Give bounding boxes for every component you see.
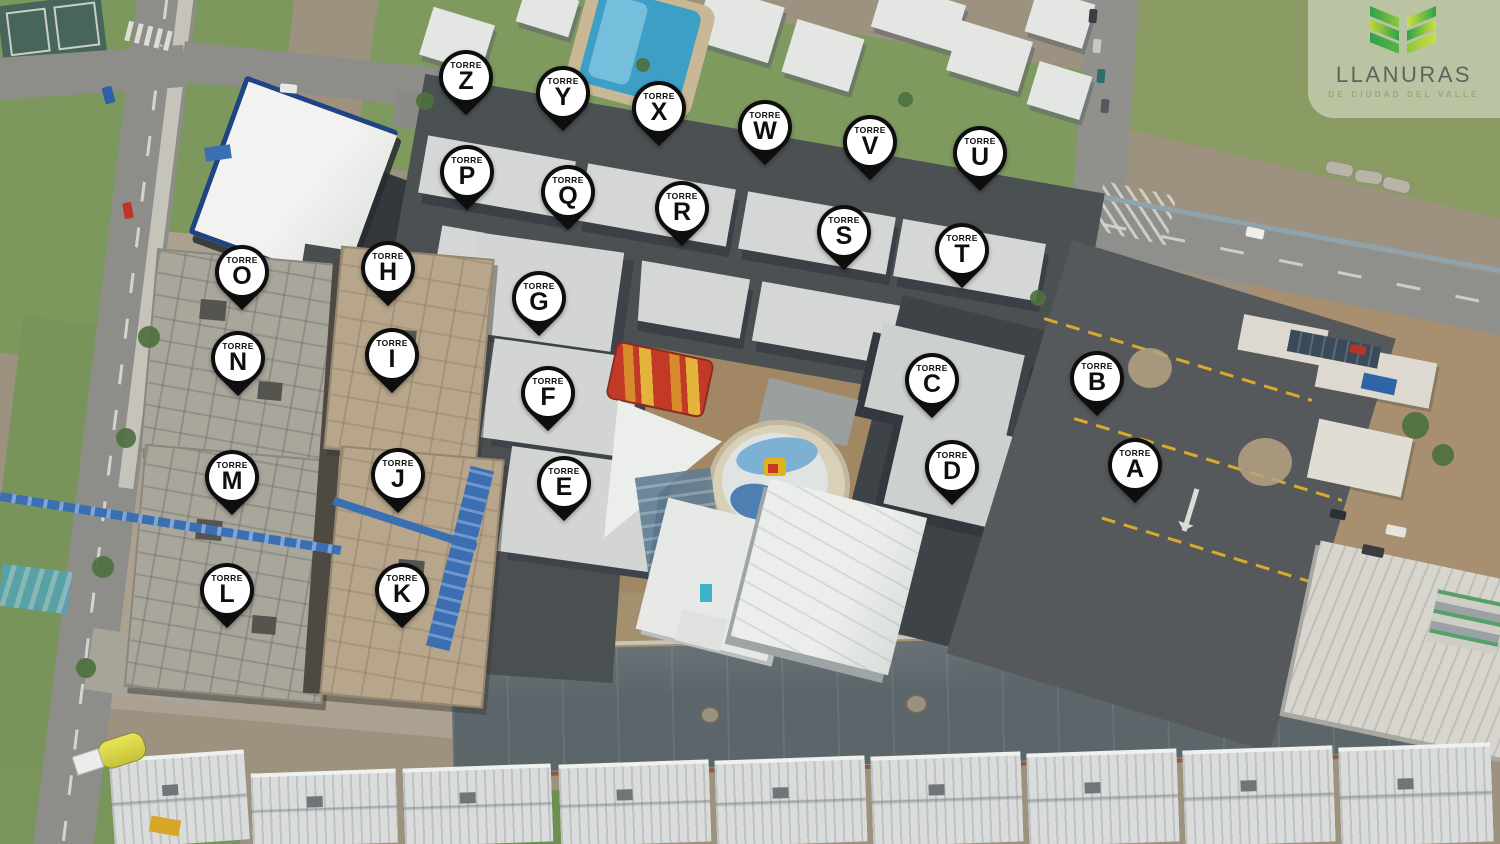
map-pin-torre-g[interactable]: TORRE G <box>511 270 567 348</box>
map-pin-face: TORRE U <box>957 130 1003 176</box>
pin-tower-letter: H <box>379 261 397 285</box>
aerial-site-map: TORRE A TORRE B TORRE C TORRE D TORRE E … <box>0 0 1500 844</box>
map-pin-torre-n[interactable]: TORRE N <box>210 330 266 408</box>
map-pin-torre-s[interactable]: TORRE S <box>816 204 872 282</box>
map-pin-torre-v[interactable]: TORRE V <box>842 114 898 192</box>
brand-watermark: LLANURAS DE CIUDAD DEL VALLE <box>1308 0 1500 118</box>
pin-tower-letter: T <box>954 243 969 267</box>
pin-tower-letter: B <box>1088 371 1106 395</box>
map-pin-face: TORRE D <box>929 444 975 490</box>
pin-tower-letter: G <box>529 291 548 315</box>
map-pin-torre-k[interactable]: TORRE K <box>374 562 430 640</box>
map-pin-torre-m[interactable]: TORRE M <box>204 449 260 527</box>
map-pin-torre-y[interactable]: TORRE Y <box>535 65 591 143</box>
pin-tower-letter: P <box>459 165 476 189</box>
map-pin-torre-i[interactable]: TORRE I <box>364 327 420 405</box>
pin-tower-letter: W <box>753 120 777 144</box>
map-pin-torre-q[interactable]: TORRE Q <box>540 164 596 242</box>
llanuras-leaves-icon <box>1370 12 1438 58</box>
map-pin-face: TORRE O <box>219 249 265 295</box>
pin-tower-letter: L <box>219 583 234 607</box>
map-pin-torre-a[interactable]: TORRE A <box>1107 437 1163 515</box>
map-pin-torre-c[interactable]: TORRE C <box>904 352 960 430</box>
map-pin-face: TORRE I <box>369 332 415 378</box>
map-pin-torre-w[interactable]: TORRE W <box>737 99 793 177</box>
map-pin-face: TORRE S <box>821 209 867 255</box>
pin-tower-letter: Y <box>555 86 572 110</box>
map-pin-torre-h[interactable]: TORRE H <box>360 240 416 318</box>
pin-layer: TORRE A TORRE B TORRE C TORRE D TORRE E … <box>0 0 1500 844</box>
map-pin-torre-d[interactable]: TORRE D <box>924 439 980 517</box>
map-pin-face: TORRE H <box>365 245 411 291</box>
map-pin-torre-f[interactable]: TORRE F <box>520 365 576 443</box>
map-pin-torre-p[interactable]: TORRE P <box>439 144 495 222</box>
map-pin-face: TORRE C <box>909 357 955 403</box>
map-pin-face: TORRE G <box>516 275 562 321</box>
map-pin-face: TORRE N <box>215 335 261 381</box>
map-pin-face: TORRE Y <box>540 70 586 116</box>
map-pin-torre-t[interactable]: TORRE T <box>934 222 990 300</box>
pin-tower-letter: F <box>540 386 555 410</box>
map-pin-torre-u[interactable]: TORRE U <box>952 125 1008 203</box>
map-pin-torre-z[interactable]: TORRE Z <box>438 49 494 127</box>
pin-tower-letter: I <box>389 348 396 372</box>
map-pin-face: TORRE R <box>659 185 705 231</box>
pin-tower-letter: D <box>943 460 961 484</box>
map-pin-torre-b[interactable]: TORRE B <box>1069 350 1125 428</box>
brand-tagline: DE CIUDAD DEL VALLE <box>1308 90 1500 99</box>
map-pin-torre-e[interactable]: TORRE E <box>536 455 592 533</box>
map-pin-face: TORRE M <box>209 454 255 500</box>
map-pin-face: TORRE Z <box>443 54 489 100</box>
map-pin-face: TORRE F <box>525 370 571 416</box>
map-pin-face: TORRE X <box>636 85 682 131</box>
pin-tower-letter: Z <box>458 70 473 94</box>
map-pin-face: TORRE P <box>444 149 490 195</box>
map-pin-face: TORRE T <box>939 227 985 273</box>
pin-tower-letter: J <box>391 468 405 492</box>
map-pin-face: TORRE L <box>204 567 250 613</box>
pin-tower-letter: O <box>232 265 251 289</box>
brand-name: LLANURAS <box>1308 62 1500 88</box>
map-pin-torre-l[interactable]: TORRE L <box>199 562 255 640</box>
pin-tower-letter: U <box>971 146 989 170</box>
pin-tower-letter: Q <box>558 185 577 209</box>
pin-tower-letter: V <box>862 135 879 159</box>
map-pin-face: TORRE B <box>1074 355 1120 401</box>
pin-tower-letter: X <box>651 101 668 125</box>
map-pin-face: TORRE V <box>847 119 893 165</box>
pin-tower-letter: E <box>556 476 573 500</box>
map-pin-face: TORRE E <box>541 460 587 506</box>
pin-tower-letter: A <box>1126 458 1144 482</box>
map-pin-face: TORRE J <box>375 452 421 498</box>
pin-tower-letter: K <box>393 583 411 607</box>
pin-tower-letter: C <box>923 373 941 397</box>
pin-tower-letter: R <box>673 201 691 225</box>
pin-tower-letter: M <box>222 470 243 494</box>
map-pin-torre-o[interactable]: TORRE O <box>214 244 270 322</box>
map-pin-torre-x[interactable]: TORRE X <box>631 80 687 158</box>
pin-tower-letter: N <box>229 351 247 375</box>
map-pin-torre-j[interactable]: TORRE J <box>370 447 426 525</box>
map-pin-face: TORRE W <box>742 104 788 150</box>
map-pin-face: TORRE Q <box>545 169 591 215</box>
map-pin-face: TORRE A <box>1112 442 1158 488</box>
map-pin-torre-r[interactable]: TORRE R <box>654 180 710 258</box>
pin-tower-letter: S <box>836 225 853 249</box>
map-pin-face: TORRE K <box>379 567 425 613</box>
